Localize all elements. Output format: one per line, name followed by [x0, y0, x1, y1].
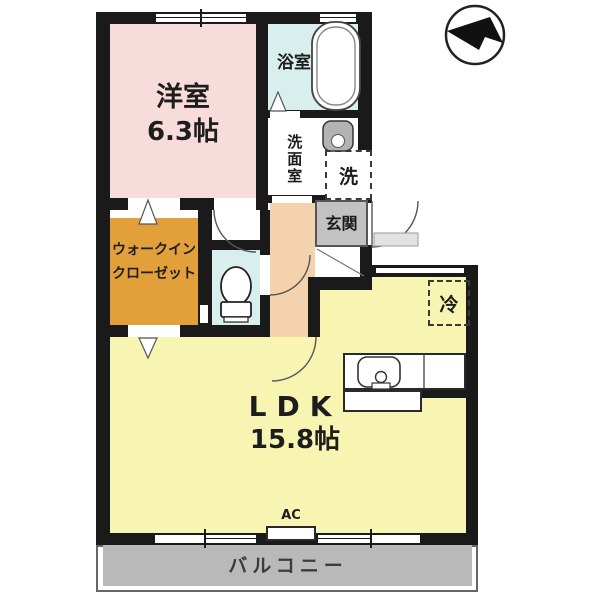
vestibule-step-line [317, 249, 364, 276]
door-arc [214, 210, 256, 252]
washroom-label: 洗面室 [283, 121, 305, 197]
door-arc [272, 337, 316, 381]
western-room-name: 洋室 [156, 83, 210, 113]
north-arrow-icon [446, 6, 504, 64]
door-triangle [139, 338, 157, 358]
ldk-name: LDK [249, 392, 342, 423]
balcony-label: バルコニー [188, 554, 388, 578]
door-arc [270, 255, 310, 295]
entrance-name: 玄関 [325, 215, 357, 233]
ldk-label: LDK [210, 390, 380, 424]
door-triangle [139, 200, 157, 224]
ldk-size-text: 15.8帖 [250, 426, 340, 455]
western-room-label: 洋室 [113, 82, 253, 114]
bath-label: 浴室 [263, 52, 325, 74]
wic-label-line2: クローゼット [104, 266, 204, 284]
washroom-name: 洗面室 [286, 134, 303, 185]
floorplan: 洗 冷 [0, 0, 600, 600]
bath-name: 浴室 [277, 54, 311, 73]
kitchen-sink-icon [358, 353, 424, 390]
washbasin-icon [323, 121, 353, 151]
western-room-size-text: 6.3帖 [147, 118, 219, 147]
balcony-name: バルコニー [228, 556, 348, 577]
ac-label: AC [271, 508, 311, 524]
wic-line1: ウォークイン [112, 243, 196, 258]
toilet-icon [221, 267, 251, 322]
wic-line2: クローゼット [112, 267, 196, 282]
ldk-size: 15.8帖 [210, 424, 380, 456]
wic-label-line1: ウォークイン [106, 242, 202, 260]
ac-text: AC [281, 509, 301, 523]
entrance-label: 玄関 [315, 213, 368, 235]
western-room-size: 6.3帖 [113, 116, 253, 148]
door-triangle [270, 92, 286, 111]
entrance-porch-step [374, 233, 418, 246]
